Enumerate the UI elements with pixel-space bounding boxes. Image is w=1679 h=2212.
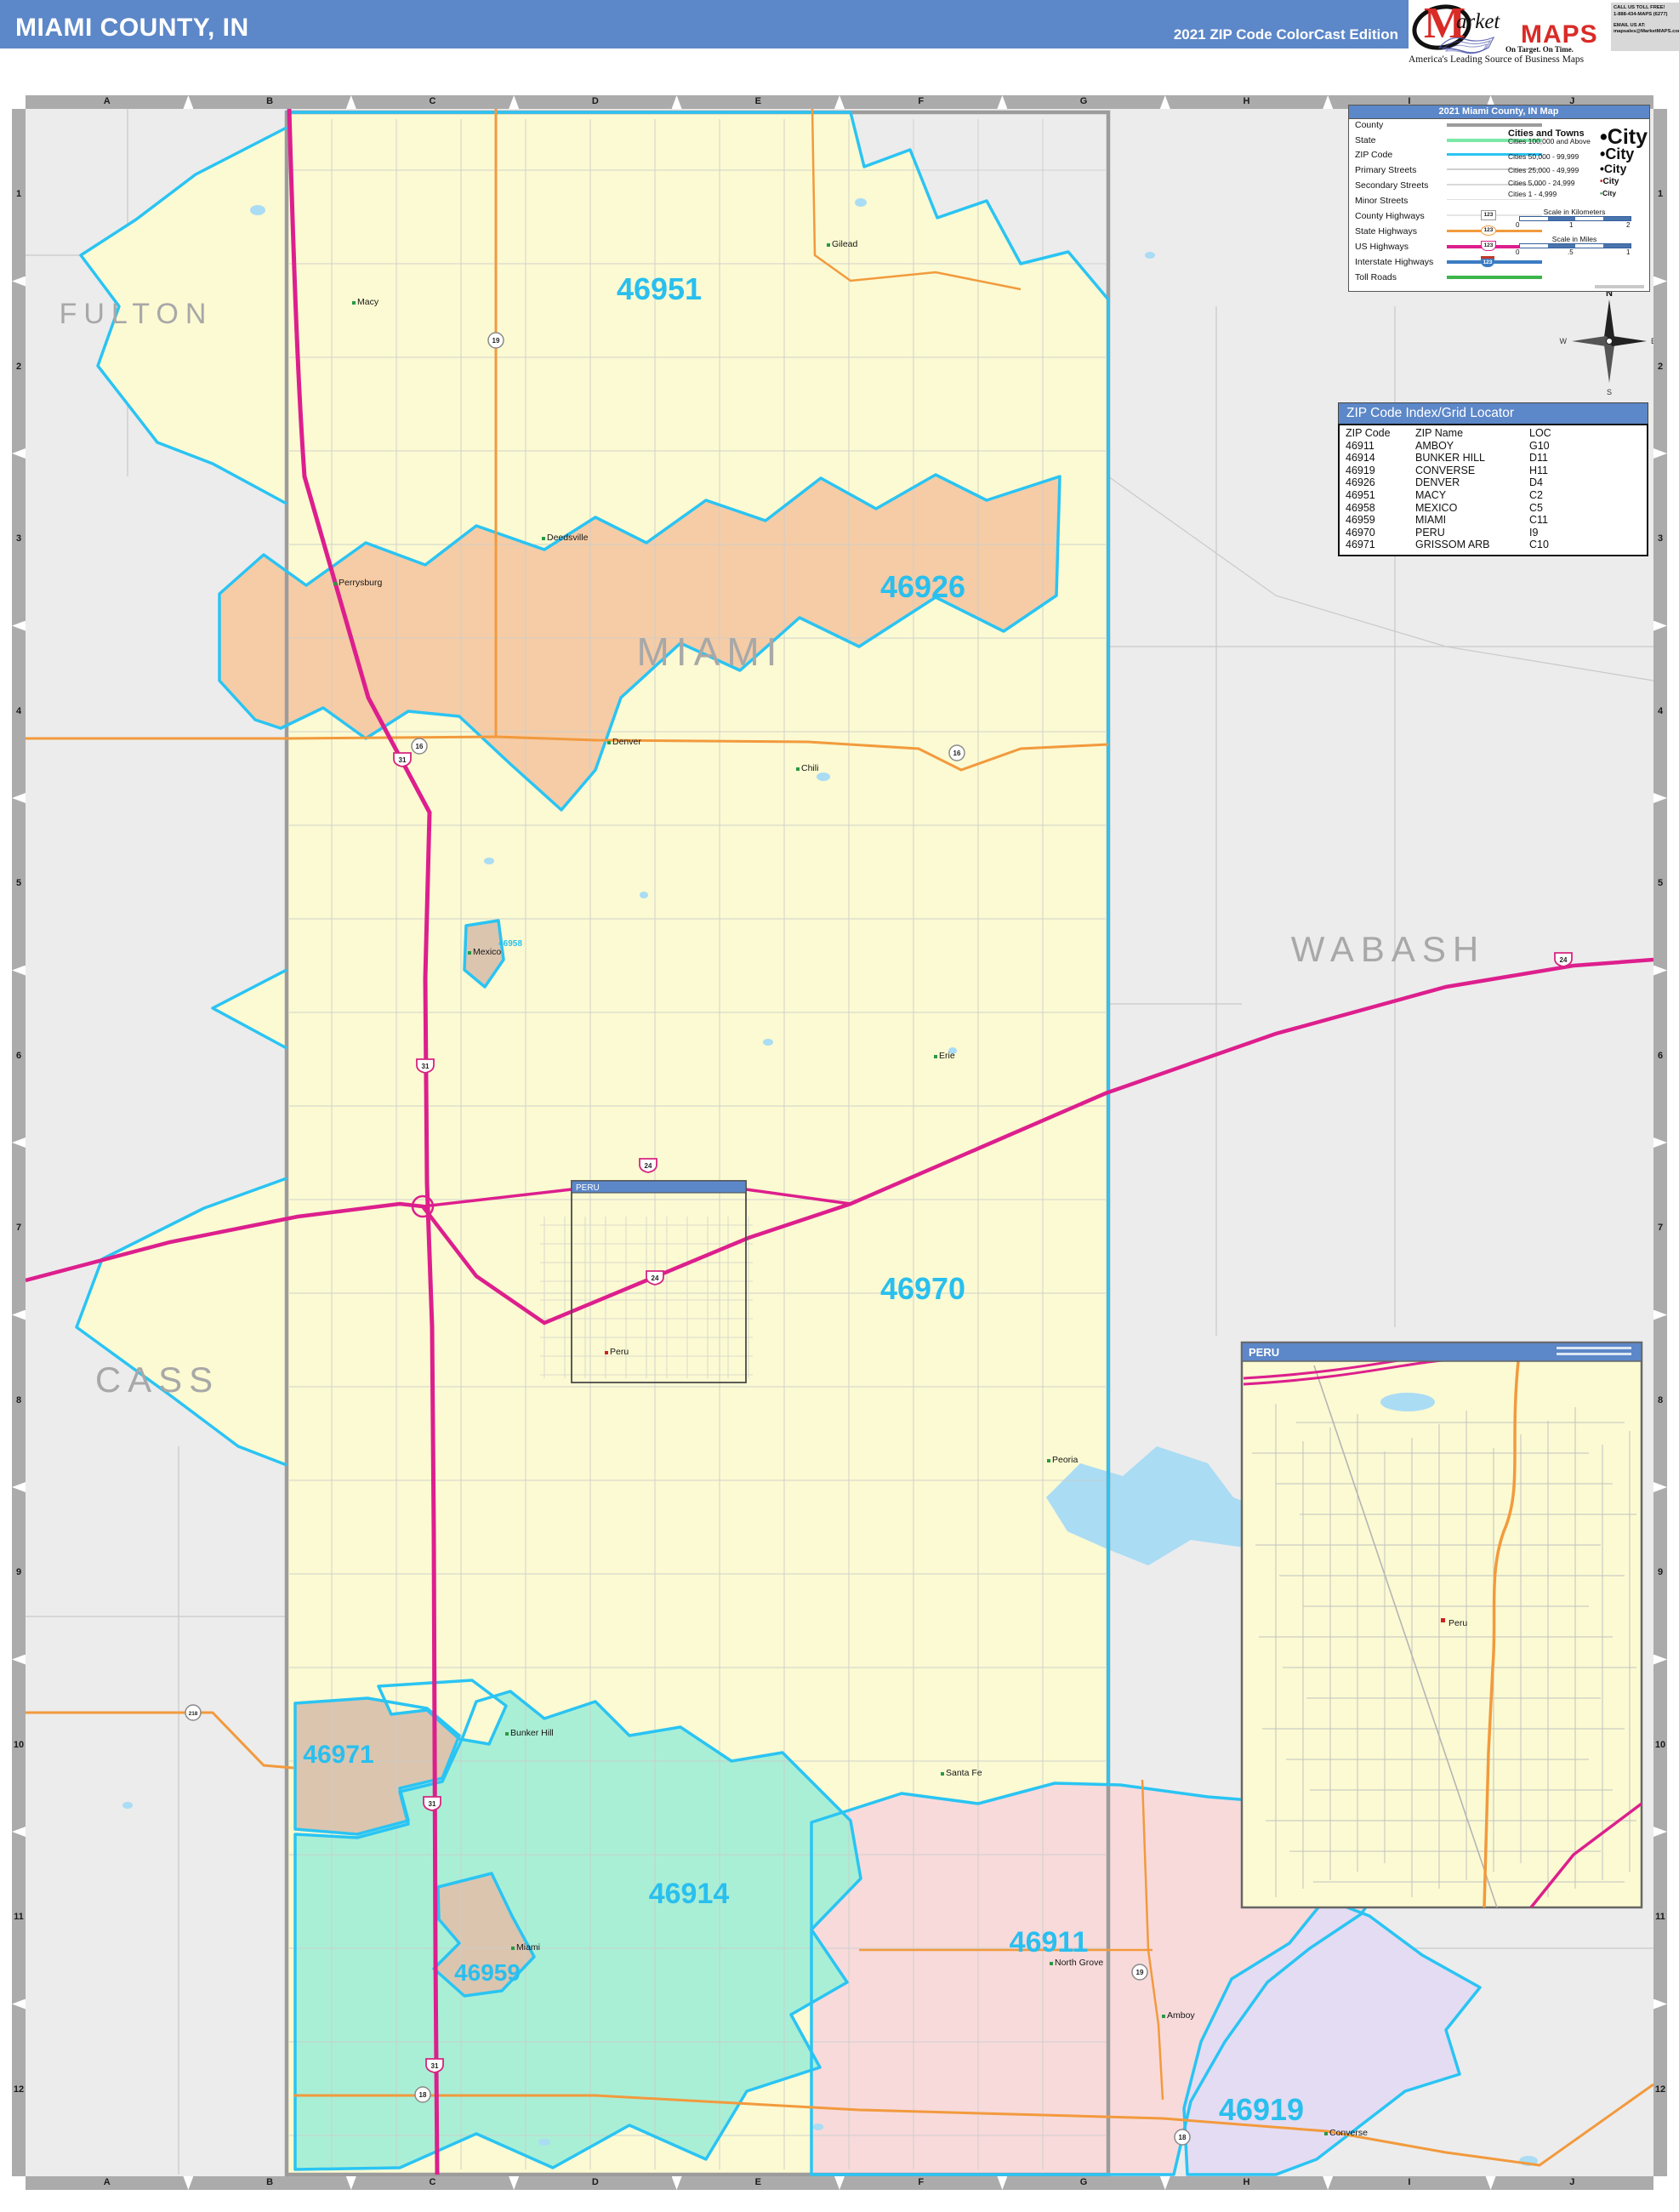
zip-index-row-46951: 46951MACYC2 — [1346, 489, 1647, 502]
county-label-fulton: FULTON — [60, 298, 213, 330]
svg-text:31: 31 — [429, 1800, 436, 1808]
legend-city-class: Cities 100,000 and Above — [1508, 137, 1591, 145]
ruler-notch — [1653, 1999, 1667, 2010]
grid-label-6: 6 — [1653, 1051, 1667, 1061]
town-peoria: Peoria — [1047, 1455, 1079, 1465]
peru-extent-title: PERU — [576, 1183, 600, 1193]
ruler-notch — [12, 1137, 26, 1148]
svg-text:18: 18 — [419, 2091, 427, 2099]
grid-label-D: D — [514, 2177, 676, 2187]
state-highway-shield-16: 16 — [949, 745, 965, 761]
svg-text:Macy: Macy — [357, 297, 379, 307]
ruler-notch — [12, 448, 26, 459]
grid-ruler-bottom: ABCDEFGHIJ — [26, 2176, 1653, 2190]
grid-label-C: C — [351, 2177, 514, 2187]
town-denver: Denver — [607, 737, 641, 747]
zip-index-row-46911: 46911AMBOYG10 — [1346, 440, 1647, 453]
ruler-notch — [1653, 1137, 1667, 1148]
page: MIAMI COUNTY, IN 2021 ZIP Code ColorCast… — [0, 0, 1679, 2212]
zip-label-46926: 46926 — [880, 569, 965, 604]
ruler-notch — [1653, 1310, 1667, 1320]
svg-text:31: 31 — [431, 2062, 439, 2070]
town-perrysburg: Perrysburg — [333, 578, 383, 588]
grid-label-I: I — [1328, 2177, 1490, 2187]
svg-text:Peoria: Peoria — [1052, 1455, 1079, 1465]
zip-index-table: ZIP CodeZIP NameLOC46911AMBOYG1046914BUN… — [1338, 424, 1648, 556]
grid-label-G: G — [1002, 96, 1164, 106]
legend-item-county: County — [1355, 120, 1383, 130]
zip-index-header-row: ZIP CodeZIP NameLOC — [1346, 427, 1647, 440]
svg-text:Peru: Peru — [610, 1347, 629, 1357]
county-label-wabash: WABASH — [1291, 929, 1485, 969]
grid-label-8: 8 — [1653, 1395, 1667, 1405]
grid-label-F: F — [839, 2177, 1002, 2187]
grid-ruler-right: 123456789101112 — [1653, 109, 1667, 2176]
town-deedsville: Deedsville — [542, 533, 589, 543]
legend-city-class: Cities 25,000 - 49,999 — [1508, 166, 1579, 174]
zip-label-46970: 46970 — [880, 1271, 965, 1306]
zip-label-46911: 46911 — [1010, 1926, 1089, 1958]
town-mexico: Mexico — [468, 947, 501, 957]
state-highway-shield-19: 19 — [1132, 1964, 1147, 1980]
svg-text:Chili: Chili — [801, 763, 818, 773]
svg-text:24: 24 — [1560, 956, 1568, 964]
svg-text:31: 31 — [422, 1063, 430, 1070]
legend-box: 2021 Miami County, IN Map CountyStateZIP… — [1348, 105, 1650, 292]
ruler-notch — [1653, 276, 1667, 287]
grid-label-8: 8 — [12, 1395, 26, 1405]
town-converse: Converse — [1324, 2128, 1368, 2138]
ruler-notch — [1653, 966, 1667, 976]
ruler-notch — [12, 276, 26, 287]
grid-label-H: H — [1165, 96, 1328, 106]
ruler-notch — [1653, 793, 1667, 803]
legend-item-minor: Minor Streets — [1355, 196, 1408, 206]
grid-label-5: 5 — [12, 878, 26, 888]
us-highway-shield-24: 24 — [646, 1271, 663, 1285]
legend-city-example: •City — [1600, 145, 1634, 163]
us-highway-shield-31: 31 — [424, 1797, 441, 1810]
grid-label-B: B — [188, 2177, 350, 2187]
contact-box: CALL US TOLL FREE! 1-888-434-MAPS (6277)… — [1611, 3, 1679, 51]
legend-item-zip: ZIP Code — [1355, 150, 1392, 160]
zip-label-46958: 46958 — [498, 939, 522, 949]
town-bunker-hill: Bunker Hill — [505, 1728, 554, 1738]
us-highway-shield-31: 31 — [394, 753, 411, 767]
grid-label-2: 2 — [1653, 362, 1667, 372]
page-title: MIAMI COUNTY, IN — [15, 14, 249, 43]
town-gilead: Gilead — [827, 239, 858, 249]
grid-label-H: H — [1165, 2177, 1328, 2187]
us-highway-shield-31: 31 — [417, 1059, 434, 1073]
svg-text:Bunker Hill: Bunker Hill — [510, 1728, 554, 1738]
inset-title: PERU — [1249, 1346, 1279, 1359]
legend-shield-sample: 123 — [1481, 256, 1494, 267]
ruler-notch — [12, 1655, 26, 1665]
svg-text:Miami: Miami — [516, 1942, 540, 1953]
grid-label-E: E — [677, 2177, 839, 2187]
svg-text:Peru: Peru — [1448, 1618, 1467, 1628]
grid-label-F: F — [839, 96, 1002, 106]
zip-index-title: ZIP Code Index/Grid Locator — [1338, 402, 1648, 424]
grid-label-9: 9 — [1653, 1567, 1667, 1577]
svg-text:Deedsville: Deedsville — [547, 533, 589, 543]
legend-shield-sample: 123 — [1481, 225, 1496, 236]
contact-call: CALL US TOLL FREE! — [1614, 5, 1679, 12]
grid-label-12: 12 — [1653, 2084, 1667, 2095]
legend-city-class: Cities 50,000 - 99,999 — [1508, 152, 1579, 161]
svg-text:Santa Fe: Santa Fe — [946, 1768, 982, 1778]
svg-text:Amboy: Amboy — [1167, 2010, 1195, 2021]
scale-mi-bar — [1519, 243, 1631, 248]
us-highway-shield-24: 24 — [1555, 953, 1572, 966]
us-highway-shield-24: 24 — [640, 1159, 657, 1172]
grid-label-5: 5 — [1653, 878, 1667, 888]
ruler-notch — [1653, 621, 1667, 631]
grid-label-G: G — [1002, 2177, 1164, 2187]
zip-index-row-46958: 46958MEXICOC5 — [1346, 502, 1647, 515]
grid-label-10: 10 — [1653, 1740, 1667, 1750]
grid-label-J: J — [1491, 2177, 1653, 2187]
grid-label-4: 4 — [12, 706, 26, 716]
grid-label-7: 7 — [1653, 1223, 1667, 1233]
grid-label-C: C — [351, 96, 514, 106]
legend-item-secondary: Secondary Streets — [1355, 180, 1428, 191]
legend-city-class: Cities 5,000 - 24,999 — [1508, 179, 1574, 187]
legend-shield-sample: 123 — [1481, 241, 1496, 251]
grid-label-3: 3 — [1653, 533, 1667, 544]
logo-market-text: arket — [1456, 10, 1500, 34]
legend-shield-sample: 123 — [1481, 210, 1496, 220]
state-highway-shield-18: 18 — [1175, 2129, 1190, 2145]
compass-e: E — [1651, 337, 1653, 345]
ruler-notch — [1653, 1655, 1667, 1665]
town-miami: Miami — [511, 1942, 540, 1953]
svg-text:Denver: Denver — [612, 737, 641, 747]
compass-s: S — [1607, 388, 1612, 396]
zip-label-46971: 46971 — [303, 1741, 373, 1769]
ruler-notch — [12, 1999, 26, 2010]
svg-text:218: 218 — [189, 1711, 198, 1717]
zip-index-row-46926: 46926DENVERD4 — [1346, 476, 1647, 489]
zip-index-row-46919: 46919CONVERSEH11 — [1346, 465, 1647, 477]
zip-index-box: ZIP Code Index/Grid Locator ZIP CodeZIP … — [1338, 402, 1648, 556]
zip-label-46951: 46951 — [617, 271, 702, 306]
zip-index-row-46914: 46914BUNKER HILLD11 — [1346, 452, 1647, 465]
svg-text:18: 18 — [1179, 2134, 1187, 2141]
legend-title: 2021 Miami County, IN Map — [1348, 105, 1650, 119]
legend-item-state: State — [1355, 135, 1376, 145]
svg-text:Mexico: Mexico — [473, 947, 501, 957]
svg-text:24: 24 — [645, 1162, 652, 1170]
grid-label-A: A — [26, 2177, 188, 2187]
ruler-notch — [12, 966, 26, 976]
svg-text:16: 16 — [953, 750, 961, 757]
legend-city-example: •City — [1600, 162, 1626, 175]
legend-item-statehwy: State Highways123 — [1355, 226, 1417, 237]
contact-email-label: EMAIL US AT: — [1614, 23, 1679, 30]
legend-item-countyhwy: County Highways123 — [1355, 211, 1425, 221]
grid-label-10: 10 — [12, 1740, 26, 1750]
logo-tagline: On Target. On Time. — [1505, 45, 1574, 54]
ruler-notch — [1653, 1827, 1667, 1837]
compass-w: W — [1560, 337, 1568, 345]
svg-text:19: 19 — [492, 337, 500, 345]
zip-label-46914: 46914 — [649, 1878, 730, 1910]
grid-label-D: D — [514, 96, 676, 106]
svg-text:Perrysburg: Perrysburg — [339, 578, 383, 588]
svg-text:19: 19 — [1136, 1969, 1144, 1976]
grid-label-4: 4 — [1653, 706, 1667, 716]
svg-text:16: 16 — [416, 743, 424, 750]
legend-item-primary: Primary Streets — [1355, 165, 1416, 175]
ruler-notch — [12, 1482, 26, 1492]
contact-phone: 1-888-434-MAPS (6277) — [1614, 12, 1679, 19]
ruler-notch — [1653, 1482, 1667, 1492]
grid-label-7: 7 — [12, 1223, 26, 1233]
county-label-miami: MIAMI — [637, 630, 784, 674]
town-north-grove: North Grove — [1050, 1958, 1103, 1968]
logo-subtitle: America's Leading Source of Business Map… — [1409, 54, 1630, 65]
grid-label-12: 12 — [12, 2084, 26, 2095]
grid-label-E: E — [677, 96, 839, 106]
grid-label-3: 3 — [12, 533, 26, 544]
legend-item-interstate: Interstate Highways123 — [1355, 257, 1433, 267]
state-highway-shield-218: 218 — [185, 1705, 201, 1720]
contact-email: mapsales@MarketMAPS.com — [1614, 29, 1679, 36]
ruler-notch — [1653, 448, 1667, 459]
grid-label-6: 6 — [12, 1051, 26, 1061]
zip-index-row-46970: 46970PERUI9 — [1346, 527, 1647, 539]
ruler-notch — [12, 1310, 26, 1320]
state-highway-shield-19: 19 — [488, 333, 504, 348]
county-label-cass: CASS — [95, 1360, 219, 1400]
svg-text:Converse: Converse — [1329, 2128, 1368, 2138]
grid-label-B: B — [188, 96, 350, 106]
legend-city-example: •City — [1600, 189, 1616, 197]
svg-text:31: 31 — [399, 756, 407, 764]
ruler-notch — [12, 1827, 26, 1837]
legend-city-class: Cities 1 - 4,999 — [1508, 190, 1557, 198]
zip-index-row-46971: 46971GRISSOM ARBC10 — [1346, 539, 1647, 551]
svg-text:North Grove: North Grove — [1055, 1958, 1103, 1968]
grid-label-2: 2 — [12, 362, 26, 372]
ruler-notch — [12, 793, 26, 803]
legend-credit-smudge — [1595, 285, 1644, 288]
scale-km-bar — [1519, 216, 1631, 221]
svg-text:Gilead: Gilead — [832, 239, 858, 249]
zip-label-46919: 46919 — [1219, 2092, 1304, 2127]
state-highway-shield-18: 18 — [415, 2087, 430, 2102]
grid-label-1: 1 — [12, 189, 26, 199]
town-santa-fe: Santa Fe — [941, 1768, 982, 1778]
town-amboy: Amboy — [1162, 2010, 1195, 2021]
grid-label-9: 9 — [12, 1567, 26, 1577]
legend-city-example: •City — [1600, 177, 1619, 186]
legend-item-toll: Toll Roads — [1355, 272, 1397, 282]
ruler-notch — [12, 621, 26, 631]
grid-label-11: 11 — [12, 1912, 26, 1922]
grid-label-A: A — [26, 96, 188, 106]
scale-km-title: Scale in Kilometers — [1519, 208, 1630, 216]
zip-index-row-46959: 46959MIAMIC11 — [1346, 514, 1647, 527]
inset-scale-bar — [1557, 1347, 1631, 1349]
svg-text:Erie: Erie — [939, 1051, 955, 1061]
grid-ruler-left: 123456789101112 — [12, 109, 26, 2176]
grid-label-11: 11 — [1653, 1912, 1667, 1922]
scale-mi-title: Scale in Miles — [1519, 235, 1630, 243]
peru-inset-map: PERU Peru — [1242, 1343, 1642, 1907]
us-highway-shield-31: 31 — [426, 2059, 443, 2072]
state-highway-shield-16: 16 — [412, 738, 427, 754]
legend-item-ushwy: US Highways123 — [1355, 242, 1409, 252]
zip-label-46959: 46959 — [454, 1959, 521, 1986]
grid-label-1: 1 — [1653, 189, 1667, 199]
svg-text:24: 24 — [652, 1274, 659, 1282]
